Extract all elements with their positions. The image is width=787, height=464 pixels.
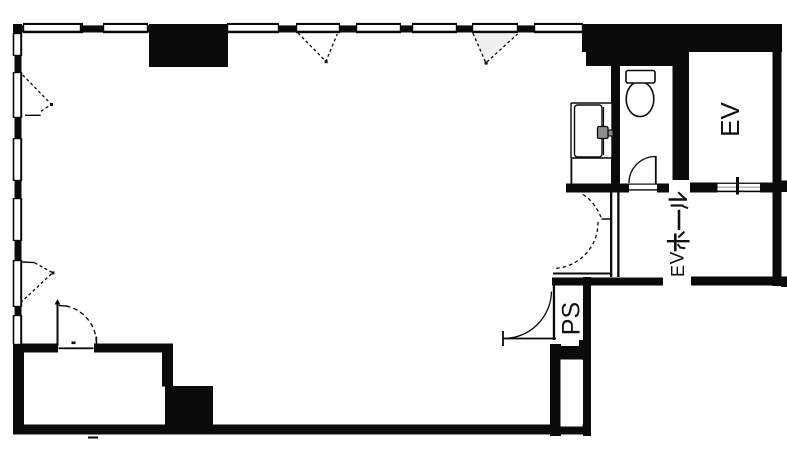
svg-text:V: V (667, 251, 688, 264)
svg-text:EV: EV (715, 102, 745, 137)
svg-text:E: E (668, 265, 688, 277)
svg-text:PS: PS (558, 302, 586, 335)
